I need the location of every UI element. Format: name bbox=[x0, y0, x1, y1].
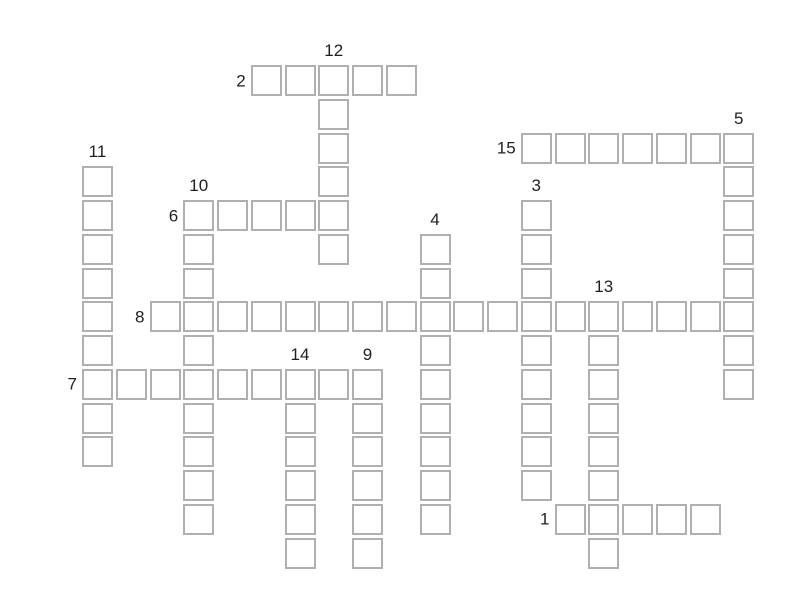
clue-number-7: 7 bbox=[68, 376, 77, 393]
crossword-cell[interactable] bbox=[386, 65, 417, 96]
clue-number-4: 4 bbox=[430, 211, 439, 228]
crossword-cell[interactable] bbox=[723, 268, 754, 299]
crossword-cell[interactable] bbox=[183, 234, 214, 265]
clue-number-14: 14 bbox=[291, 346, 310, 363]
clue-number-13: 13 bbox=[594, 278, 613, 295]
crossword-cell[interactable] bbox=[521, 335, 552, 366]
crossword-cell[interactable] bbox=[285, 403, 316, 434]
crossword-cell[interactable] bbox=[622, 133, 653, 164]
crossword-cell[interactable] bbox=[318, 301, 349, 332]
clue-number-9: 9 bbox=[363, 346, 372, 363]
crossword-cell[interactable] bbox=[588, 470, 619, 501]
crossword-cell[interactable] bbox=[521, 403, 552, 434]
crossword-cell[interactable] bbox=[521, 133, 552, 164]
crossword-cell[interactable] bbox=[318, 65, 349, 96]
crossword-cell[interactable] bbox=[318, 369, 349, 400]
crossword-cell[interactable] bbox=[82, 166, 113, 197]
crossword-cell[interactable] bbox=[352, 403, 383, 434]
crossword-cell[interactable] bbox=[521, 268, 552, 299]
crossword-cell[interactable] bbox=[285, 436, 316, 467]
clue-number-6: 6 bbox=[169, 207, 178, 224]
crossword-cell[interactable] bbox=[588, 436, 619, 467]
crossword-cell[interactable] bbox=[251, 301, 282, 332]
crossword-cell[interactable] bbox=[352, 538, 383, 569]
crossword-cell[interactable] bbox=[285, 504, 316, 535]
crossword-cell[interactable] bbox=[420, 268, 451, 299]
crossword-cell[interactable] bbox=[318, 99, 349, 130]
crossword-cell[interactable] bbox=[555, 133, 586, 164]
crossword-cell[interactable] bbox=[420, 335, 451, 366]
crossword-cell[interactable] bbox=[318, 166, 349, 197]
crossword-cell[interactable] bbox=[588, 133, 619, 164]
clue-number-5: 5 bbox=[734, 110, 743, 127]
crossword-cell[interactable] bbox=[318, 133, 349, 164]
crossword-cell[interactable] bbox=[285, 200, 316, 231]
crossword-cell[interactable] bbox=[420, 369, 451, 400]
crossword-cell[interactable] bbox=[183, 301, 214, 332]
crossword-cell[interactable] bbox=[420, 470, 451, 501]
crossword-cell[interactable] bbox=[352, 369, 383, 400]
crossword-cell[interactable] bbox=[183, 504, 214, 535]
crossword-cell[interactable] bbox=[183, 200, 214, 231]
crossword-cell[interactable] bbox=[656, 301, 687, 332]
crossword-cell[interactable] bbox=[690, 301, 721, 332]
crossword-cell[interactable] bbox=[251, 65, 282, 96]
crossword-cell[interactable] bbox=[217, 369, 248, 400]
crossword-cell[interactable] bbox=[217, 200, 248, 231]
crossword-cell[interactable] bbox=[588, 538, 619, 569]
crossword-cell[interactable] bbox=[555, 504, 586, 535]
crossword-cell[interactable] bbox=[285, 369, 316, 400]
crossword-cell[interactable] bbox=[183, 436, 214, 467]
clue-number-8: 8 bbox=[135, 308, 144, 325]
crossword-cell[interactable] bbox=[183, 335, 214, 366]
crossword-cell[interactable] bbox=[723, 301, 754, 332]
crossword-cell[interactable] bbox=[285, 470, 316, 501]
crossword-cell[interactable] bbox=[183, 470, 214, 501]
crossword-cell[interactable] bbox=[521, 369, 552, 400]
crossword-cell[interactable] bbox=[352, 65, 383, 96]
crossword-cell[interactable] bbox=[183, 369, 214, 400]
crossword-cell[interactable] bbox=[588, 369, 619, 400]
crossword-cell[interactable] bbox=[352, 470, 383, 501]
crossword-cell[interactable] bbox=[285, 301, 316, 332]
crossword-cell[interactable] bbox=[318, 200, 349, 231]
crossword-cell[interactable] bbox=[588, 335, 619, 366]
crossword-cell[interactable] bbox=[521, 301, 552, 332]
crossword-cell[interactable] bbox=[690, 133, 721, 164]
clue-number-12: 12 bbox=[324, 42, 343, 59]
crossword-cell[interactable] bbox=[521, 234, 552, 265]
crossword-cell[interactable] bbox=[723, 335, 754, 366]
crossword-cell[interactable] bbox=[420, 234, 451, 265]
crossword-cell[interactable] bbox=[723, 133, 754, 164]
crossword-cell[interactable] bbox=[386, 301, 417, 332]
crossword-cell[interactable] bbox=[183, 403, 214, 434]
crossword-cell[interactable] bbox=[453, 301, 484, 332]
crossword-cell[interactable] bbox=[723, 369, 754, 400]
crossword-cell[interactable] bbox=[420, 403, 451, 434]
crossword-cell[interactable] bbox=[723, 166, 754, 197]
crossword-cell[interactable] bbox=[588, 403, 619, 434]
crossword-board: 123456789101112131415 bbox=[0, 0, 800, 600]
crossword-cell[interactable] bbox=[82, 301, 113, 332]
crossword-cell[interactable] bbox=[420, 504, 451, 535]
crossword-cell[interactable] bbox=[82, 436, 113, 467]
crossword-cell[interactable] bbox=[150, 301, 181, 332]
clue-number-15: 15 bbox=[497, 140, 516, 157]
crossword-cell[interactable] bbox=[352, 436, 383, 467]
crossword-cell[interactable] bbox=[116, 369, 147, 400]
crossword-cell[interactable] bbox=[588, 504, 619, 535]
clue-number-2: 2 bbox=[236, 72, 245, 89]
crossword-cell[interactable] bbox=[82, 200, 113, 231]
crossword-cell[interactable] bbox=[723, 200, 754, 231]
clue-number-10: 10 bbox=[189, 177, 208, 194]
crossword-cell[interactable] bbox=[318, 234, 349, 265]
clue-number-11: 11 bbox=[89, 143, 107, 160]
crossword-cell[interactable] bbox=[521, 200, 552, 231]
crossword-cell[interactable] bbox=[352, 301, 383, 332]
crossword-cell[interactable] bbox=[82, 403, 113, 434]
crossword-cell[interactable] bbox=[487, 301, 518, 332]
crossword-cell[interactable] bbox=[150, 369, 181, 400]
crossword-cell[interactable] bbox=[723, 234, 754, 265]
crossword-cell[interactable] bbox=[555, 301, 586, 332]
crossword-cell[interactable] bbox=[285, 65, 316, 96]
crossword-cell[interactable] bbox=[352, 504, 383, 535]
crossword-cell[interactable] bbox=[656, 504, 687, 535]
crossword-cell[interactable] bbox=[82, 335, 113, 366]
crossword-cell[interactable] bbox=[622, 504, 653, 535]
crossword-cell[interactable] bbox=[521, 470, 552, 501]
crossword-cell[interactable] bbox=[217, 301, 248, 332]
crossword-cell[interactable] bbox=[82, 369, 113, 400]
crossword-cell[interactable] bbox=[622, 301, 653, 332]
crossword-cell[interactable] bbox=[690, 504, 721, 535]
crossword-cell[interactable] bbox=[420, 436, 451, 467]
clue-number-1: 1 bbox=[540, 511, 549, 528]
crossword-cell[interactable] bbox=[183, 268, 214, 299]
crossword-cell[interactable] bbox=[285, 538, 316, 569]
crossword-cell[interactable] bbox=[420, 301, 451, 332]
crossword-cell[interactable] bbox=[656, 133, 687, 164]
crossword-cell[interactable] bbox=[251, 200, 282, 231]
crossword-cell[interactable] bbox=[82, 234, 113, 265]
crossword-cell[interactable] bbox=[588, 301, 619, 332]
crossword-cell[interactable] bbox=[82, 268, 113, 299]
clue-number-3: 3 bbox=[532, 177, 541, 194]
crossword-cell[interactable] bbox=[251, 369, 282, 400]
crossword-cell[interactable] bbox=[521, 436, 552, 467]
